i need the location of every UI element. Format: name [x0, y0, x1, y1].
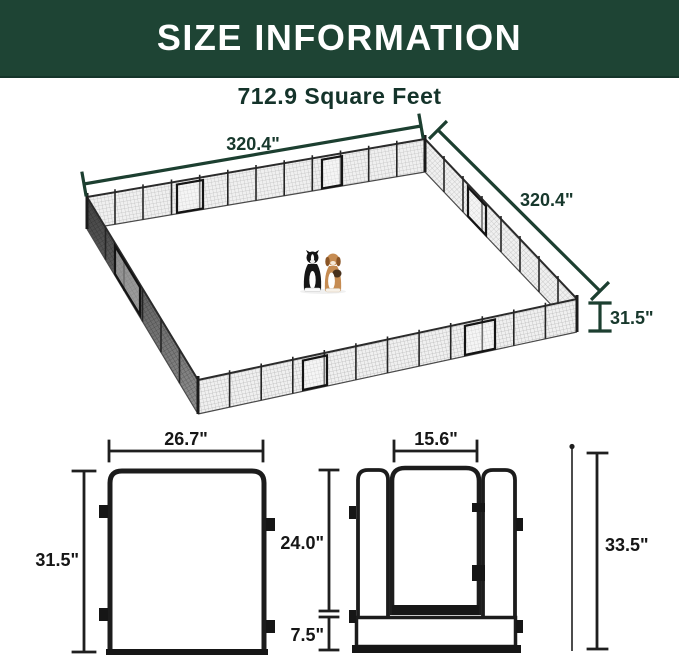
pen-back-door-1 — [177, 180, 203, 213]
door-latch — [472, 503, 485, 512]
pen-back-door-2 — [322, 156, 342, 188]
dim-total-height: 33.5" — [588, 453, 649, 649]
single-panel-diagram: 26.7" 31.5" — [35, 429, 275, 655]
door-panel-diagram: 15.6" 24.0" 7.5" — [280, 429, 648, 653]
door-width-label: 15.6" — [414, 429, 458, 449]
panel-width-label: 26.7" — [164, 429, 208, 449]
dim-panel-width: 26.7" — [109, 429, 263, 461]
dim-wall-height: 31.5" — [590, 303, 654, 331]
side-width-label: 320.4" — [520, 190, 574, 210]
dim-door-width: 15.6" — [394, 429, 477, 461]
panel-height-label: 31.5" — [35, 550, 79, 570]
door-hinge — [472, 565, 485, 581]
bottom-rail-height-label: 7.5" — [290, 625, 324, 645]
beagle-dog-icon — [325, 254, 342, 293]
pen-front-door-2 — [465, 320, 495, 356]
door-height-label: 24.0" — [280, 533, 324, 553]
dim-bottom-rail-height: 7.5" — [290, 617, 338, 650]
dim-panel-height: 31.5" — [35, 471, 95, 652]
page-title: SIZE INFORMATION — [157, 17, 522, 59]
pen-front-door-1 — [303, 355, 327, 390]
total-height-label: 33.5" — [605, 535, 649, 555]
panel-detail-diagrams: 26.7" 31.5" 15.6" — [0, 420, 679, 655]
area-subtitle: 712.9 Square Feet — [0, 78, 679, 112]
dim-door-height: 24.0" — [280, 470, 338, 611]
ground-stake — [569, 444, 574, 651]
top-width-label: 320.4" — [226, 134, 280, 154]
pen-isometric-diagram: 320.4" 320.4" 31.5" — [0, 112, 679, 420]
header-banner: SIZE INFORMATION — [0, 0, 679, 78]
wall-height-label: 31.5" — [610, 308, 654, 328]
